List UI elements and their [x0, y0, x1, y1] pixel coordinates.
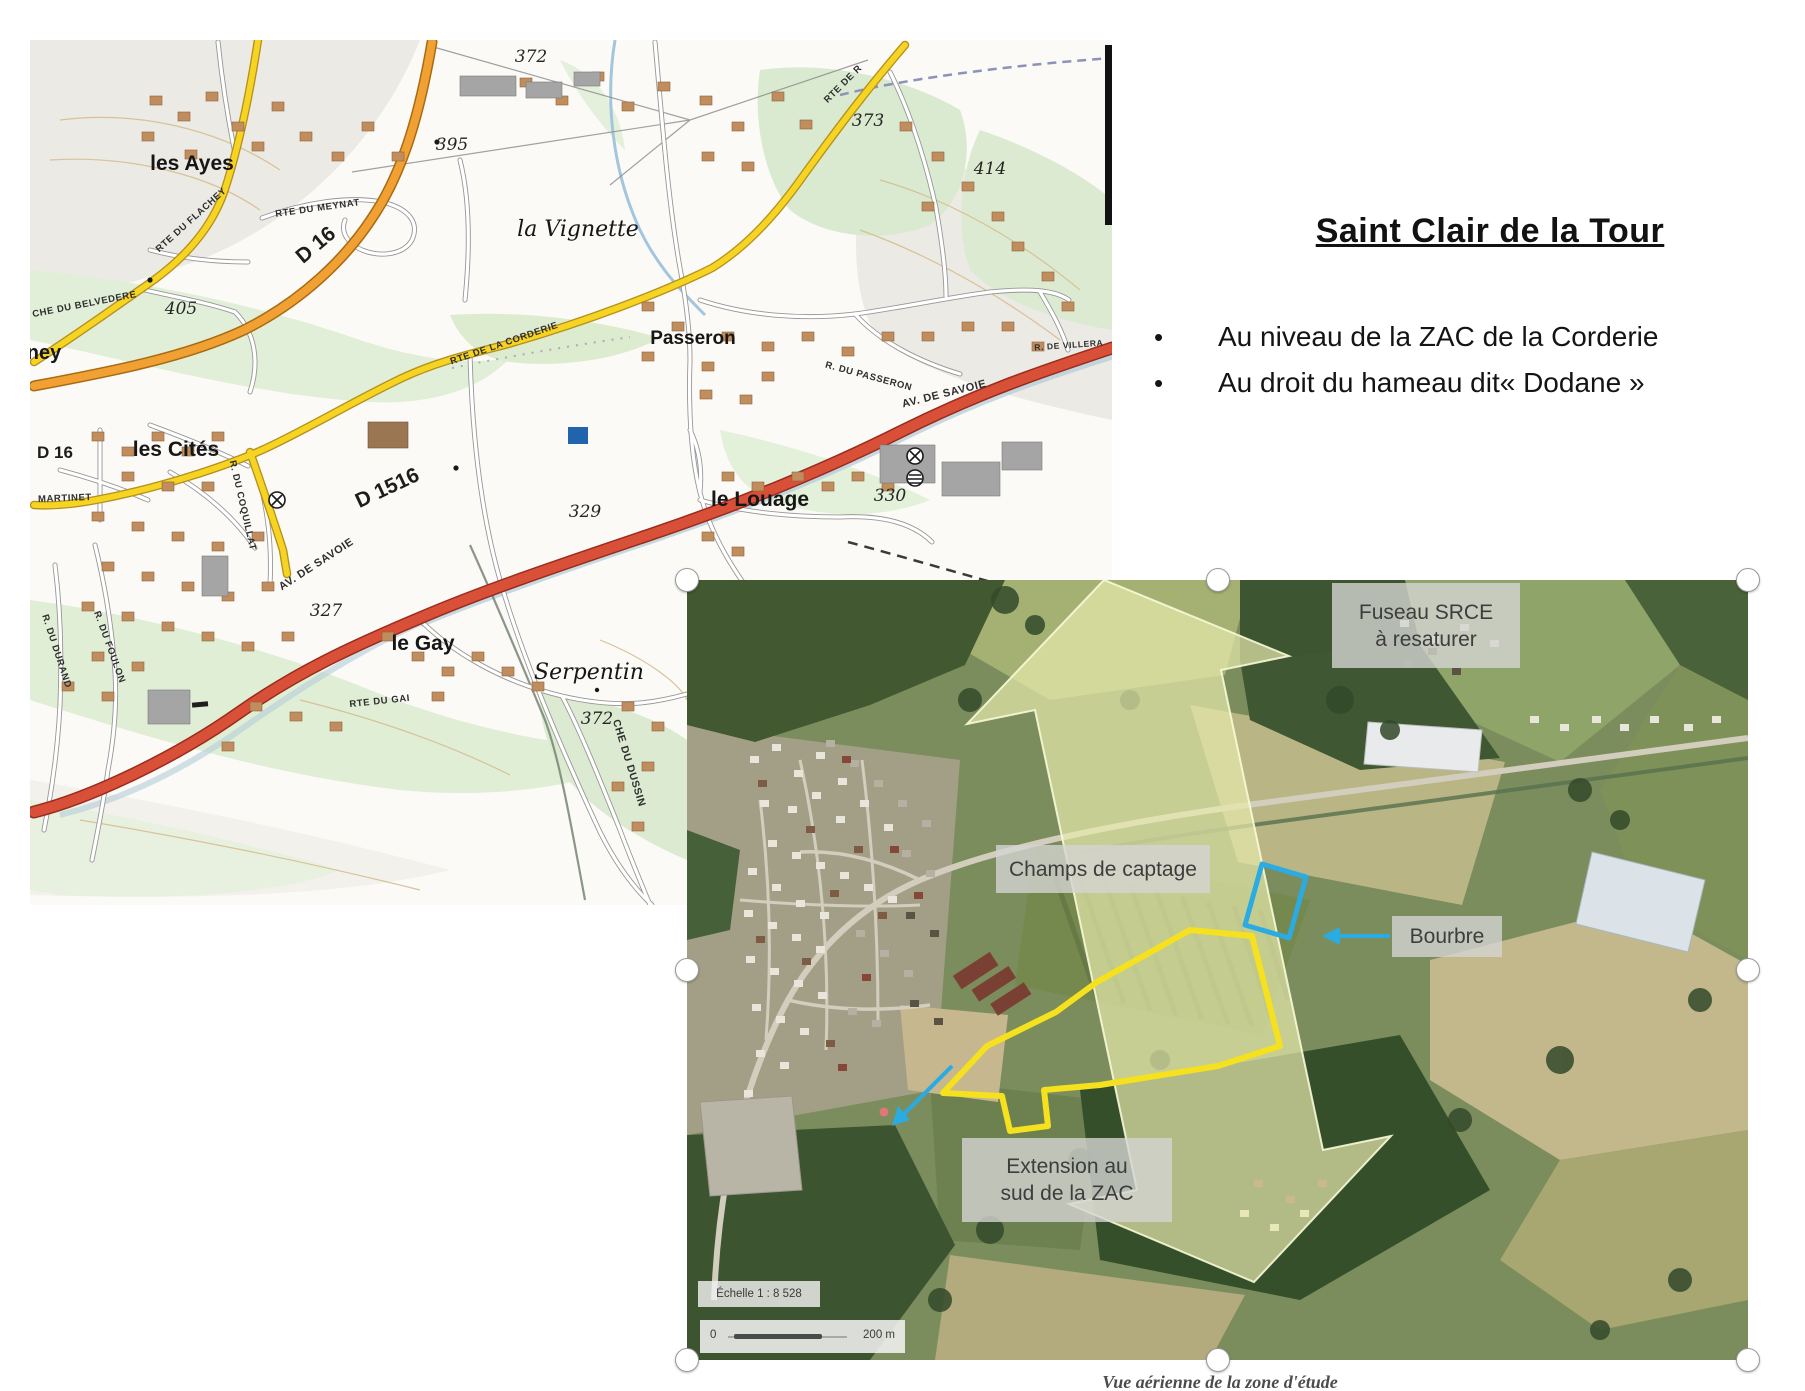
bullet-text: Au niveau de la ZAC de la Corderie — [1218, 321, 1658, 352]
annotation-extension-zac: Extension au sud de la ZAC — [962, 1138, 1172, 1222]
annotation-champs-captage: Champs de captage — [996, 845, 1210, 893]
map-label-le-louage: le Louage — [711, 488, 809, 511]
selection-handle-bottom-right[interactable] — [1736, 1348, 1760, 1372]
annotation-line: Champs de captage — [1009, 856, 1197, 883]
map-elevation: 372 — [581, 709, 613, 729]
map-label-le-gay: le Gay — [391, 632, 454, 655]
map-label-la-vignette: la Vignette — [517, 217, 639, 242]
map-label-les-cites: les Cités — [133, 438, 219, 461]
page-title: Saint Clair de la Tour — [1180, 212, 1800, 251]
selection-handle-top-center[interactable] — [1206, 568, 1230, 592]
annotation-line: sud de la ZAC — [1000, 1180, 1133, 1207]
scale-value: Échelle 1 : 8 528 — [716, 1288, 802, 1300]
annotation-line: Fuseau SRCE — [1359, 599, 1493, 626]
selection-handle-bottom-left[interactable] — [675, 1348, 699, 1372]
map-elevation: 405 — [164, 299, 197, 319]
selection-handle-right-middle[interactable] — [1736, 958, 1760, 982]
document-page: les Ayes la Vignette Passeron les Cités … — [0, 0, 1805, 1391]
map-marker-blue-square — [568, 427, 588, 444]
parking-area — [700, 1096, 802, 1196]
aerial-photo[interactable] — [687, 580, 1748, 1360]
map-elevation: 372 — [515, 47, 547, 67]
annotation-line: Bourbre — [1410, 923, 1485, 950]
bullet-list: Au niveau de la ZAC de la Corderie Au dr… — [1140, 314, 1800, 406]
map-elevation: 395 — [436, 135, 468, 155]
map-elevation: 414 — [973, 159, 1006, 179]
map-elevation: 330 — [874, 486, 907, 506]
scale-end: 200 m — [863, 1329, 895, 1341]
bullet-item: Au niveau de la ZAC de la Corderie — [1140, 314, 1800, 360]
map-road-martinet: MARTINET — [38, 492, 92, 505]
scale-zero: 0 — [710, 1329, 716, 1341]
map-edge-mark — [1105, 45, 1112, 225]
selection-handle-bottom-center[interactable] — [1206, 1348, 1230, 1372]
selection-handle-top-left[interactable] — [675, 568, 699, 592]
survey-marker-icon — [907, 448, 923, 464]
scale-text: Échelle 1 : 8 528 — [698, 1281, 820, 1307]
selection-handle-left-middle[interactable] — [675, 958, 699, 982]
map-route-d16-small: D 16 — [37, 443, 73, 462]
selection-handle-top-right[interactable] — [1736, 568, 1760, 592]
annotation-line: Extension au — [1006, 1153, 1127, 1180]
scale-segment — [734, 1334, 822, 1339]
map-elevation: 327 — [310, 601, 343, 621]
scale-bar: 0 200 m — [700, 1320, 905, 1353]
annotation-bourbre: Bourbre — [1392, 916, 1502, 957]
bullet-item: Au droit du hameau dit« Dodane » — [1140, 360, 1800, 406]
survey-marker-icon — [269, 492, 285, 508]
annotation-fuseau-srce: Fuseau SRCE à resaturer — [1332, 583, 1520, 668]
annotation-line: à resaturer — [1375, 626, 1477, 653]
map-label-passeron: Passeron — [650, 328, 736, 349]
aerial-caption: Vue aérienne de la zone d'étude — [1040, 1372, 1400, 1391]
pink-marker — [880, 1108, 889, 1117]
factory-symbol-icon — [907, 470, 923, 486]
map-label-serpentin: Serpentin — [534, 660, 644, 685]
bullet-text: Au droit du hameau dit« Dodane » — [1218, 367, 1645, 398]
map-elevation: 329 — [569, 502, 602, 522]
map-label-les-ayes: les Ayes — [150, 152, 234, 175]
map-elevation: 373 — [852, 111, 884, 131]
map-label-ney: ney — [30, 342, 62, 364]
